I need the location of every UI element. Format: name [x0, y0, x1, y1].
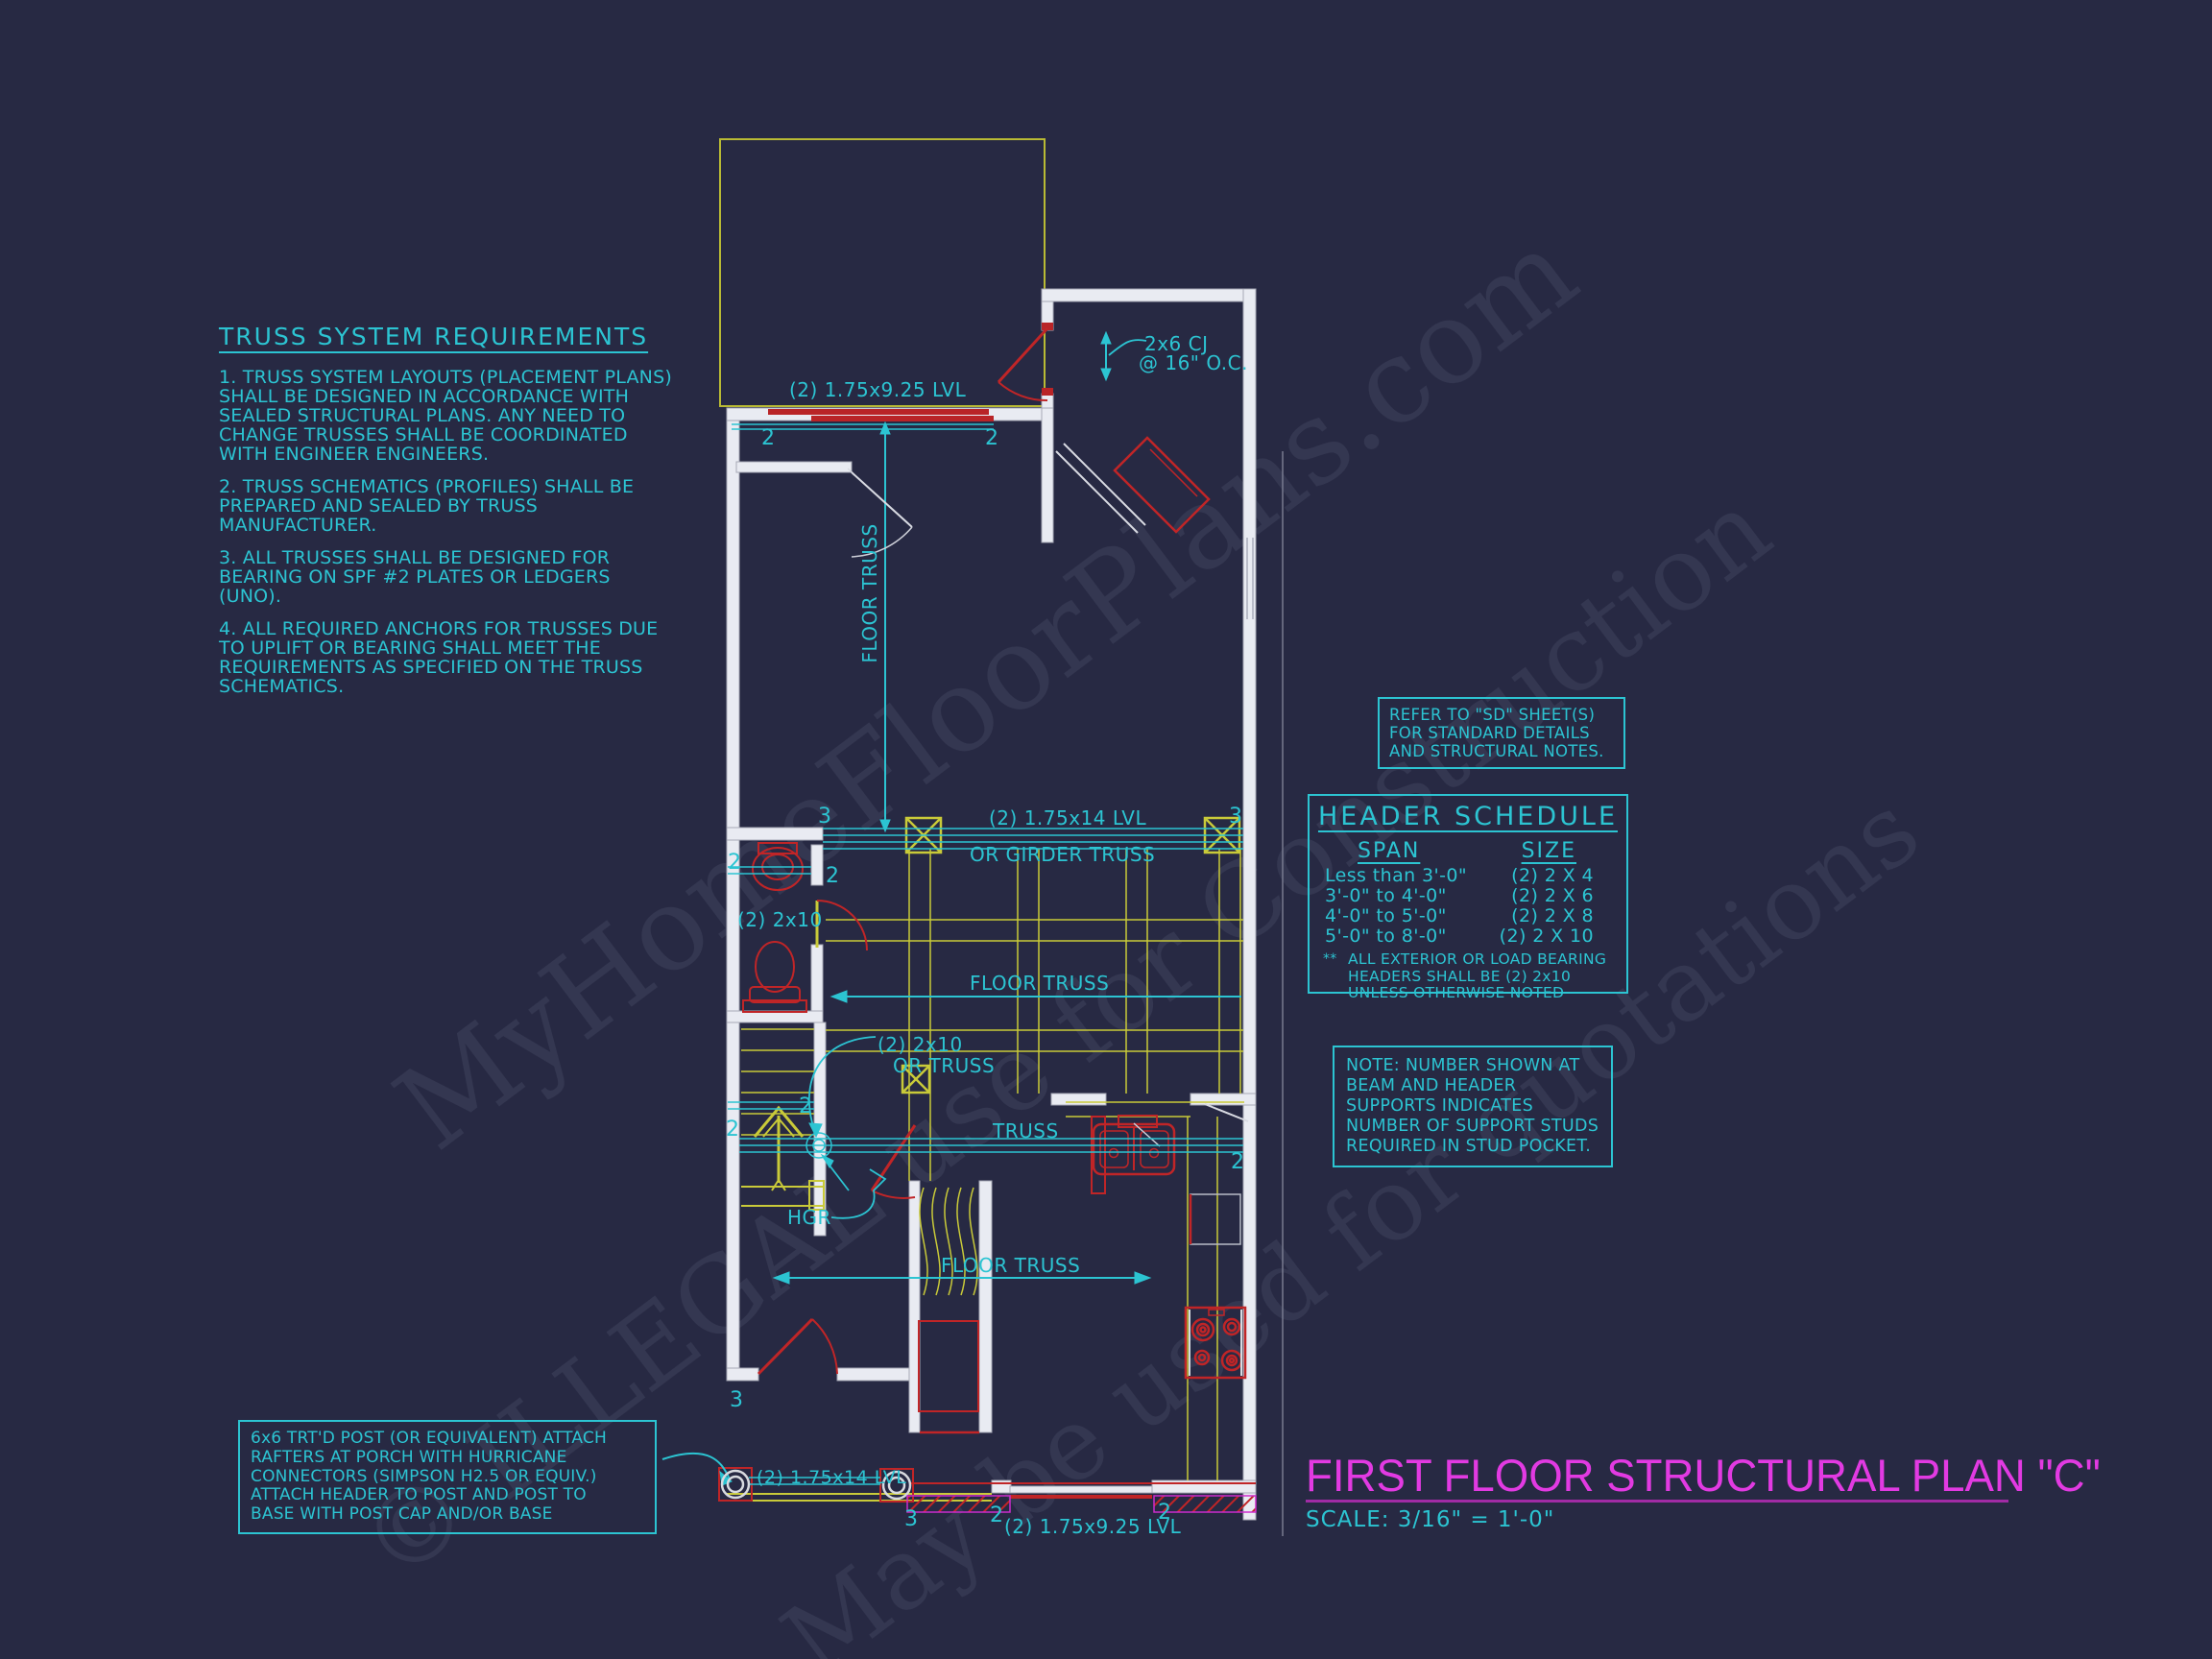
row-span: 5'-0" to 8'-0": [1325, 926, 1447, 946]
label-2x10-or-truss-1: (2) 2x10: [878, 1033, 963, 1056]
stud-count-marker: 3: [818, 805, 831, 829]
walls: [727, 289, 1256, 1520]
header-schedule-row: 4'-0" to 5'-0"(2) 2 X 8: [1310, 905, 1626, 926]
interior-door: [848, 444, 1248, 1121]
truss-requirements-title: TRUSS SYSTEM REQUIREMENTS: [219, 323, 676, 350]
sheet-scale: SCALE: 3/16" = 1'-0": [1306, 1507, 1554, 1532]
post-note-line: 6x6 TRT'D POST (OR EQUIVALENT) ATTACH: [251, 1430, 644, 1449]
sheet-title-underline: [1306, 1500, 2008, 1503]
support-note-box: NOTE: NUMBER SHOWN ATBEAM AND HEADERSUPP…: [1333, 1046, 1613, 1167]
column-span: SPAN: [1358, 839, 1420, 863]
support-note-line: REQUIRED IN STUD POCKET.: [1346, 1137, 1599, 1157]
header-schedule-rows: Less than 3'-0"(2) 2 X 43'-0" to 4'-0"(2…: [1310, 865, 1626, 946]
label-truss: TRUSS: [993, 1119, 1059, 1142]
row-span: 3'-0" to 4'-0": [1325, 886, 1447, 905]
row-span: Less than 3'-0": [1325, 866, 1467, 885]
label-2x10-or-truss-2: OR TRUSS: [893, 1054, 995, 1077]
sd-note-line: FOR STANDARD DETAILS: [1389, 724, 1614, 742]
stud-count-marker: 2: [1231, 1150, 1244, 1174]
sheet-title: FIRST FLOOR STRUCTURAL PLAN "C": [1306, 1449, 2101, 1502]
support-note-line: BEAM AND HEADER: [1346, 1076, 1599, 1096]
label-floor-truss-vertical: FLOOR TRUSS: [858, 523, 881, 662]
truss-requirement-item: 2. TRUSS SCHEMATICS (PROFILES) SHALL BE …: [219, 477, 676, 535]
label-lvl-14-porch: (2) 1.75x14 LVL: [757, 1467, 906, 1488]
stud-count-marker: 2: [1158, 1501, 1171, 1525]
truss-requirements-notes: TRUSS SYSTEM REQUIREMENTS 1. TRUSS SYSTE…: [219, 323, 676, 709]
header-schedule-row: 5'-0" to 8'-0"(2) 2 X 10: [1310, 926, 1626, 946]
truss-requirement-item: 1. TRUSS SYSTEM LAYOUTS (PLACEMENT PLANS…: [219, 368, 676, 464]
stud-count-marker: 2: [985, 426, 998, 450]
stud-count-marker: 2: [761, 426, 775, 450]
stud-count-marker: 2: [726, 1118, 739, 1142]
arched-opening-fan: [920, 1188, 977, 1295]
header-schedule-row: 3'-0" to 4'-0"(2) 2 X 6: [1310, 885, 1626, 905]
support-note-line: NUMBER OF SUPPORT STUDS: [1346, 1117, 1599, 1137]
stud-count-marker: 2: [728, 851, 741, 875]
label-lvl-14-girder: (2) 1.75x14 LVL: [989, 806, 1146, 829]
stud-count-marker: 2: [799, 1094, 812, 1118]
deck-outline: [720, 139, 1045, 406]
label-floor-truss-mid: FLOOR TRUSS: [970, 972, 1109, 995]
label-or-girder-truss: OR GIRDER TRUSS: [970, 843, 1155, 866]
footnote-line: UNLESS OTHERWISE NOTED: [1348, 985, 1606, 1002]
label-floor-truss-bottom: FLOOR TRUSS: [941, 1254, 1080, 1277]
header-schedule-row: Less than 3'-0"(2) 2 X 4: [1310, 865, 1626, 885]
header-schedule-footnote: ** ALL EXTERIOR OR LOAD BEARINGHEADERS S…: [1310, 946, 1626, 1002]
label-lvl-925-top: (2) 1.75x9.25 LVL: [789, 378, 966, 401]
column-size: SIZE: [1522, 839, 1576, 863]
post-note-line: ATTACH HEADER TO POST AND POST TO: [251, 1486, 644, 1505]
footnote-bullet: **: [1323, 951, 1348, 1002]
post-note-line: BASE WITH POST CAP AND/OR BASE: [251, 1505, 644, 1525]
footnote-line: ALL EXTERIOR OR LOAD BEARING: [1348, 951, 1606, 969]
row-size: (2) 2 X 8: [1511, 906, 1594, 926]
post-note-line: RAFTERS AT PORCH WITH HURRICANE: [251, 1449, 644, 1468]
truss-requirement-item: 3. ALL TRUSSES SHALL BE DESIGNED FOR BEA…: [219, 548, 676, 606]
floor-plan-drawing: [0, 0, 2212, 1659]
stud-count-marker: 3: [904, 1507, 918, 1531]
header-schedule: HEADER SCHEDULE SPAN SIZE Less than 3'-0…: [1308, 794, 1628, 994]
sd-note-box: REFER TO "SD" SHEET(S)FOR STANDARD DETAI…: [1378, 697, 1625, 769]
row-size: (2) 2 X 6: [1511, 886, 1594, 905]
patio-door: [1010, 1486, 1152, 1499]
post-note-line: CONNECTORS (SIMPSON H2.5 OR EQUIV.): [251, 1468, 644, 1487]
label-ceiling-joist-2: @ 16" O.C.: [1139, 351, 1248, 374]
label-lvl-925-bottom: (2) 1.75x9.25 LVL: [1004, 1515, 1181, 1538]
post-note-box: 6x6 TRT'D POST (OR EQUIVALENT) ATTACHRAF…: [238, 1420, 657, 1534]
sd-note-line: AND STRUCTURAL NOTES.: [1389, 742, 1614, 760]
sd-note-line: REFER TO "SD" SHEET(S): [1389, 706, 1614, 724]
support-note-line: SUPPORTS INDICATES: [1346, 1096, 1599, 1117]
cad-sheet: MyHomeFloorPlans.com© ILLEGAL use for Co…: [0, 0, 2212, 1659]
footnote-line: HEADERS SHALL BE (2) 2x10: [1348, 969, 1606, 986]
label-hgr: HGR: [787, 1206, 831, 1229]
stud-count-marker: 3: [1229, 805, 1242, 829]
support-note-line: NOTE: NUMBER SHOWN AT: [1346, 1056, 1599, 1076]
label-2x10-bath: (2) 2x10: [737, 908, 823, 931]
truss-requirements-items: 1. TRUSS SYSTEM LAYOUTS (PLACEMENT PLANS…: [219, 368, 676, 696]
row-size: (2) 2 X 4: [1511, 866, 1594, 885]
kitchen-fixtures: [1094, 1116, 1245, 1378]
header-schedule-columns: SPAN SIZE: [1310, 831, 1626, 865]
truss-requirement-item: 4. ALL REQUIRED ANCHORS FOR TRUSSES DUE …: [219, 619, 676, 696]
stud-count-marker: 2: [826, 864, 839, 888]
header-schedule-title: HEADER SCHEDULE: [1310, 802, 1626, 831]
stud-count-marker: 3: [730, 1388, 743, 1412]
row-span: 4'-0" to 5'-0": [1325, 906, 1447, 926]
footnote-lines: ALL EXTERIOR OR LOAD BEARINGHEADERS SHAL…: [1348, 951, 1606, 1002]
row-size: (2) 2 X 10: [1500, 926, 1594, 946]
stud-count-marker: 2: [990, 1503, 1003, 1527]
